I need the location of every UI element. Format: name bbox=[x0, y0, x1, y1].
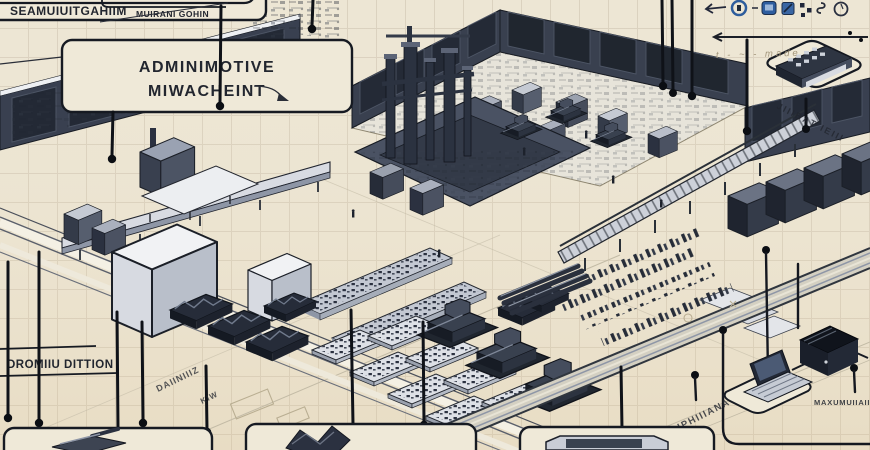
legend-caption: t - ~ - made bbox=[716, 48, 801, 61]
admin-label-line2: MIWACHEINT bbox=[148, 83, 266, 100]
callout-bottom-2 bbox=[246, 424, 476, 450]
admin-label-line1: ADMINIMOTIVE bbox=[139, 59, 275, 76]
callout-bottom-1 bbox=[4, 428, 212, 450]
bottom-box3-machine bbox=[546, 436, 668, 450]
callout-top-middle-label: MUIRANI GOHIN bbox=[136, 9, 209, 19]
factory-illustration: SEAMUIUITGAHIIM MUIRANI GOHIN ADMINIMOTI… bbox=[0, 0, 870, 450]
production-label: DROMIIU DITTION bbox=[7, 359, 114, 371]
dark-machine-caption: MAXUMUIIAIIII bbox=[814, 398, 870, 407]
callout-bottom-3 bbox=[520, 427, 714, 450]
panel-icon bbox=[762, 2, 776, 15]
chip-icon bbox=[782, 3, 794, 15]
blueprint-canvas: SEAMUIUITGAHIIM MUIRANI GOHIN ADMINIMOTI… bbox=[0, 0, 870, 450]
